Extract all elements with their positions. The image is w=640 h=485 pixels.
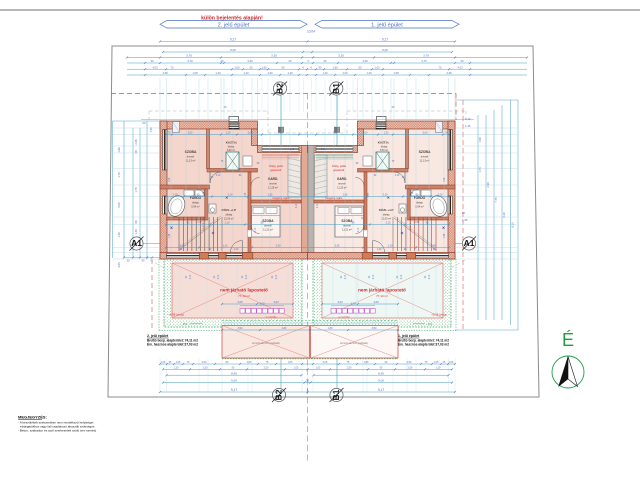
svg-text:1,00: 1,00: [374, 65, 380, 69]
svg-text:B2: B2: [274, 389, 284, 400]
svg-text:2,10: 2,10: [345, 274, 347, 279]
svg-text:2,10: 2,10: [190, 274, 192, 279]
svg-text:5,05: 5,05: [117, 202, 121, 208]
svg-text:2,10: 2,10: [358, 227, 360, 232]
svg-text:2,50: 2,50: [203, 366, 208, 369]
svg-text:1,35: 1,35: [268, 194, 273, 197]
svg-text:1,40: 1,40: [215, 71, 221, 75]
svg-text:2,05: 2,05: [290, 149, 295, 151]
svg-text:1,98: 1,98: [478, 137, 482, 143]
svg-text:2,46: 2,46: [134, 139, 138, 145]
svg-text:2,10: 2,10: [225, 222, 230, 225]
svg-text:30: 30: [151, 59, 154, 63]
svg-text:08: 08: [134, 220, 138, 223]
svg-text:11,21 m²: 11,21 m²: [342, 229, 352, 232]
svg-text:3,70: 3,70: [186, 54, 192, 58]
svg-text:2,10: 2,10: [276, 274, 278, 279]
svg-text:12,03 m²: 12,03 m²: [381, 218, 391, 221]
svg-text:tervnél: tervnél: [421, 156, 429, 159]
svg-text:1. jelű épület: 1. jelű épület: [371, 23, 403, 29]
svg-text:1,80: 1,80: [364, 361, 369, 364]
svg-text:1,60: 1,60: [342, 71, 348, 75]
svg-text:gépészell.: gépészell.: [333, 168, 345, 172]
svg-text:tervnél: tervnél: [264, 225, 272, 228]
svg-text:9,17: 9,17: [231, 388, 237, 392]
svg-text:77,14 m²: 77,14 m²: [238, 294, 250, 298]
svg-text:30: 30: [306, 379, 310, 383]
svg-text:sz. lamellás: sz. lamellás: [338, 316, 350, 318]
svg-text:SZOBA: SZOBA: [262, 219, 274, 223]
svg-text:8,30: 8,30: [511, 222, 515, 228]
svg-text:11,25 m²: 11,25 m²: [268, 187, 278, 190]
svg-text:1,40: 1,40: [287, 71, 293, 75]
svg-text:4,03: 4,03: [457, 65, 463, 69]
svg-text:2,10: 2,10: [228, 194, 233, 197]
svg-text:1,48: 1,48: [117, 232, 121, 238]
svg-text:nem járható lapostető: nem járható lapostető: [358, 288, 406, 293]
svg-text:GARD.: GARD.: [268, 177, 278, 181]
svg-text:1,40: 1,40: [322, 71, 328, 75]
svg-text:É: É: [562, 330, 574, 350]
svg-text:2,10: 2,10: [246, 274, 248, 279]
svg-text:1,48: 1,48: [134, 229, 138, 235]
svg-text:gépészell.: gépészell.: [270, 168, 282, 172]
svg-text:1,48: 1,48: [169, 233, 171, 238]
svg-text:3,70: 3,70: [187, 59, 193, 63]
svg-text:3,00: 3,00: [337, 300, 343, 304]
svg-text:9,17: 9,17: [382, 38, 388, 42]
svg-text:2,10: 2,10: [401, 274, 403, 279]
svg-text:2,10: 2,10: [383, 194, 388, 197]
svg-text:+1,38: +1,38: [413, 222, 419, 224]
svg-text:1,05: 1,05: [449, 361, 454, 364]
svg-text:A1: A1: [131, 238, 142, 248]
svg-text:3,60: 3,60: [180, 245, 185, 248]
svg-text:KÖZL.+LP: KÖZL.+LP: [222, 207, 237, 212]
svg-text:7,75: 7,75: [494, 197, 498, 203]
svg-text:2,50: 2,50: [408, 366, 413, 369]
svg-text:hűtőg. pellet: hűtőg. pellet: [269, 164, 283, 168]
svg-text:3,70: 3,70: [421, 59, 427, 63]
svg-text:3,20: 3,20: [362, 59, 368, 63]
svg-text:SZOBA: SZOBA: [185, 150, 197, 154]
svg-text:60: 60: [462, 211, 466, 215]
svg-text:1,10: 1,10: [223, 245, 228, 248]
svg-text:KAZT.H.: KAZT.H.: [378, 141, 390, 145]
svg-text:4: 4: [307, 388, 309, 392]
svg-text:2,10: 2,10: [218, 274, 220, 279]
svg-text:3,20: 3,20: [247, 59, 253, 63]
svg-text:1,00: 1,00: [234, 65, 240, 69]
svg-text:2,50: 2,50: [264, 366, 269, 369]
svg-text:30: 30: [461, 59, 464, 63]
svg-text:9,17: 9,17: [230, 38, 236, 42]
svg-text:nem járható lapostető: nem járható lapostető: [220, 288, 268, 293]
svg-text:1,98: 1,98: [117, 147, 121, 153]
svg-text:2,10: 2,10: [373, 274, 375, 279]
svg-text:2. jelű épület: 2. jelű épület: [218, 23, 250, 29]
svg-text:1,48: 1,48: [444, 233, 446, 238]
svg-text:konzol alu terv (pelbala): konzol alu terv (pelbala): [340, 341, 368, 345]
svg-text:2,10: 2,10: [255, 227, 257, 232]
svg-text:1,20: 1,20: [226, 132, 231, 135]
svg-text:B2: B2: [275, 83, 285, 94]
svg-text:1,05: 1,05: [176, 361, 181, 364]
svg-text:MEGJEGYZÉS:: MEGJEGYZÉS:: [18, 415, 47, 420]
svg-text:1,05: 1,05: [161, 361, 166, 364]
svg-text:3,50: 3,50: [372, 327, 377, 330]
svg-text:11,25 m²: 11,25 m²: [337, 187, 347, 190]
svg-text:1,08: 1,08: [393, 71, 399, 75]
svg-text:1,40: 1,40: [366, 71, 372, 75]
svg-text:9,17: 9,17: [378, 388, 384, 392]
svg-text:A1: A1: [464, 238, 475, 248]
svg-text:9,00: 9,00: [382, 48, 388, 52]
svg-text:4,38: 4,38: [162, 71, 168, 75]
svg-text:1,75: 1,75: [478, 167, 482, 173]
svg-text:1,05: 1,05: [294, 366, 299, 369]
svg-text:3,60: 3,60: [237, 300, 243, 304]
svg-text:1,98: 1,98: [444, 177, 446, 182]
svg-text:2,00: 2,00: [363, 132, 368, 135]
svg-text:1,90: 1,90: [261, 65, 267, 69]
svg-text:2,05: 2,05: [321, 149, 326, 151]
svg-text:1,20: 1,20: [384, 132, 389, 135]
svg-text:8,30: 8,30: [502, 212, 506, 218]
svg-text:1,90: 1,90: [332, 65, 338, 69]
svg-text:11,13 m²: 11,13 m²: [420, 160, 430, 163]
svg-text:Ém. hasznos alapterület:37,03: Ém. hasznos alapterület:37,03 m2: [398, 342, 449, 347]
svg-text:1,40: 1,40: [377, 249, 382, 251]
svg-text:B1: B1: [331, 389, 341, 400]
svg-text:hangszig. lejáró: hangszig. lejáró: [273, 197, 290, 200]
svg-text:9,00: 9,00: [378, 379, 384, 383]
svg-text:2,50: 2,50: [347, 366, 352, 369]
svg-text:3,30: 3,30: [276, 245, 281, 248]
svg-text:1,30: 1,30: [436, 366, 441, 369]
svg-text:2,10: 2,10: [317, 203, 319, 208]
svg-text:Ém. hasznos alapterület:37,03: Ém. hasznos alapterület:37,03 m2: [147, 342, 198, 347]
svg-text:KÖZL.+LP: KÖZL.+LP: [379, 207, 394, 212]
svg-text:3,00: 3,00: [188, 132, 193, 135]
svg-text:3,60: 3,60: [373, 300, 379, 304]
svg-text:1,05: 1,05: [323, 361, 328, 364]
svg-text:2%: 2%: [428, 322, 433, 326]
svg-text:2,10: 2,10: [216, 175, 221, 177]
svg-text:1,75: 1,75: [117, 172, 121, 178]
svg-text:2. jelű épület: 2. jelű épület: [147, 334, 169, 338]
svg-text:1,05: 1,05: [288, 361, 293, 364]
svg-text:4,03: 4,03: [152, 65, 158, 69]
svg-text:- Beton, szabadon és acél szer: - Beton, szabadon és acél szerkezetek sz…: [18, 429, 96, 433]
svg-text:5,46 m²: 5,46 m²: [227, 149, 235, 152]
svg-text:1,45: 1,45: [462, 218, 468, 222]
svg-text:1,98: 1,98: [169, 177, 171, 182]
svg-text:11,21 m²: 11,21 m²: [263, 229, 273, 232]
svg-text:3,00: 3,00: [273, 300, 279, 304]
svg-text:2,10: 2,10: [395, 175, 400, 177]
svg-text:1,75: 1,75: [134, 187, 138, 193]
svg-text:ölelap: ölelap: [416, 202, 423, 205]
svg-text:tervnél: tervnél: [269, 183, 277, 186]
svg-text:1,40: 1,40: [234, 249, 239, 251]
svg-text:3,30: 3,30: [338, 54, 344, 58]
svg-text:9,00: 9,00: [231, 379, 237, 383]
svg-text:3,60: 3,60: [431, 245, 436, 248]
svg-text:1,80: 1,80: [247, 361, 252, 364]
svg-text:2,10: 2,10: [173, 194, 178, 197]
svg-text:3,50: 3,50: [238, 327, 243, 330]
svg-text:KAZT.H.: KAZT.H.: [226, 141, 238, 145]
svg-text:3,30: 3,30: [335, 245, 340, 248]
svg-text:sz. lamellás: sz. lamellás: [265, 316, 277, 318]
svg-text:5,94 m²: 5,94 m²: [191, 206, 200, 209]
svg-text:1,05: 1,05: [434, 361, 439, 364]
svg-text:3,00: 3,00: [423, 132, 428, 135]
svg-text:+1,38: +1,38: [196, 222, 202, 224]
svg-text:17x17,6=2,89: 17x17,6=2,89: [203, 217, 205, 231]
svg-text:1,60: 1,60: [267, 71, 273, 75]
svg-text:1,40: 1,40: [243, 71, 249, 75]
svg-text:5,94 m²: 5,94 m²: [415, 206, 424, 209]
svg-text:2,10: 2,10: [296, 203, 298, 208]
svg-text:12,03 m²: 12,03 m²: [224, 218, 234, 221]
svg-text:20: 20: [289, 59, 292, 63]
svg-text:20: 20: [221, 59, 224, 63]
svg-text:11,13 m²: 11,13 m²: [186, 160, 196, 163]
svg-text:3,05: 3,05: [117, 262, 121, 268]
svg-text:3,70: 3,70: [423, 54, 429, 58]
svg-text:2,00: 2,00: [248, 132, 253, 135]
svg-text:2,50: 2,50: [407, 361, 412, 364]
svg-text:tervnél: tervnél: [343, 225, 351, 228]
svg-text:1,35: 1,35: [343, 194, 348, 197]
svg-text:B1: B1: [331, 83, 341, 94]
svg-text:1,48: 1,48: [149, 127, 153, 133]
svg-text:+0,38 (vizíg): +0,38 (vizíg): [168, 313, 184, 317]
svg-text:ölelap: ölelap: [383, 214, 390, 217]
svg-text:+0,38 (vizíg): +0,38 (vizíg): [431, 313, 447, 317]
svg-text:ölelap: ölelap: [192, 202, 199, 205]
svg-text:1,80: 1,80: [328, 327, 333, 330]
svg-text:GARD.: GARD.: [337, 177, 347, 181]
svg-text:hangszig. lejáró: hangszig. lejáró: [326, 197, 343, 200]
svg-text:2,10: 2,10: [386, 222, 391, 225]
svg-text:8,40: 8,40: [378, 371, 384, 375]
svg-text:1,45: 1,45: [465, 124, 471, 128]
svg-text:20: 20: [324, 59, 327, 63]
svg-text:10,04: 10,04: [307, 30, 315, 34]
svg-text:3,30: 3,30: [271, 54, 277, 58]
svg-text:tervnél: tervnél: [187, 156, 195, 159]
svg-text:1,80: 1,80: [282, 327, 287, 330]
svg-text:5,46 m²: 5,46 m²: [380, 149, 388, 152]
svg-text:1,10: 1,10: [388, 245, 393, 248]
svg-text:konzol alu terv (pelbala): konzol alu terv (pelbala): [252, 341, 280, 345]
svg-text:2%: 2%: [183, 322, 188, 326]
svg-text:1,30: 1,30: [174, 366, 179, 369]
svg-text:2,50: 2,50: [202, 361, 207, 364]
svg-text:17x17,6=2,89: 17x17,6=2,89: [410, 217, 412, 231]
svg-text:1. jelű épület: 1. jelű épület: [398, 334, 420, 338]
svg-text:2,10: 2,10: [429, 274, 431, 279]
svg-text:2,10: 2,10: [438, 194, 443, 197]
svg-text:9,00: 9,00: [230, 48, 236, 52]
svg-text:1,05: 1,05: [316, 366, 321, 369]
svg-text:1,08: 1,08: [192, 71, 198, 75]
svg-text:4,38: 4,38: [446, 71, 452, 75]
svg-text:ölelap: ölelap: [225, 214, 232, 217]
svg-text:2,98: 2,98: [486, 182, 490, 188]
svg-text:8,40: 8,40: [231, 371, 237, 375]
